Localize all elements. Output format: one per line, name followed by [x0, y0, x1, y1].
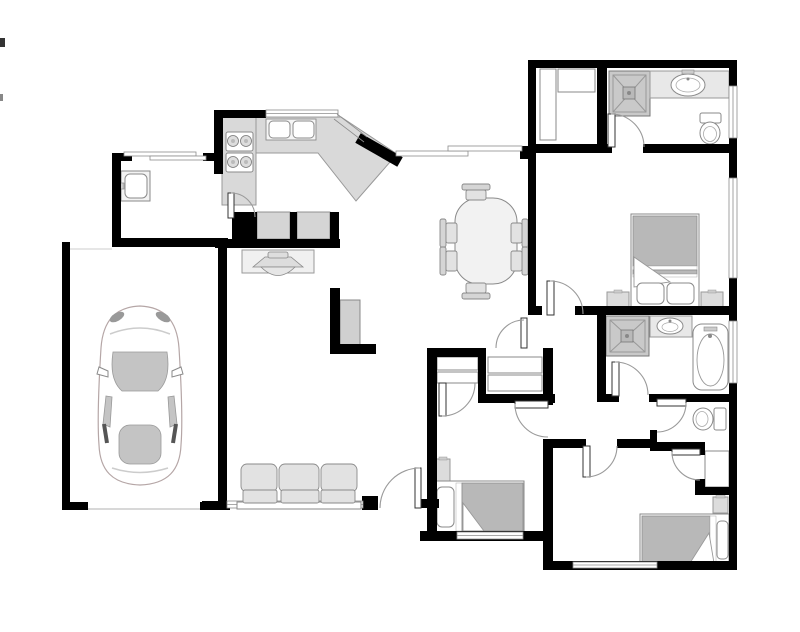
closet-shelf: [437, 357, 478, 370]
single-bed: [434, 481, 524, 533]
sofa-back-cushion: [279, 464, 319, 492]
windshield: [112, 352, 168, 391]
door-bath2: [612, 362, 648, 396]
room-family: [242, 212, 360, 346]
sofa: [237, 464, 361, 509]
utility-sink-basin: [125, 174, 147, 198]
shower-stall: [609, 71, 650, 116]
rear-window: [119, 425, 161, 464]
shower-stall: [606, 316, 649, 356]
car: [97, 306, 183, 485]
window-master-bath: [729, 86, 737, 138]
window-bedroom2: [457, 532, 523, 539]
dining-table: [455, 198, 517, 284]
room-master-bath: [540, 69, 729, 144]
room-kitchen: [222, 117, 397, 205]
sliding-patio-door: [396, 146, 522, 156]
single-bed: [640, 514, 729, 565]
bookshelf: [340, 300, 360, 346]
vanity-sink: [650, 316, 692, 337]
door-bedroom2: [515, 401, 548, 437]
door-bedroom3-closet: [672, 449, 700, 480]
room-hallway: [488, 357, 542, 391]
window-bath2: [729, 321, 737, 383]
tv-screen-arc: [261, 267, 295, 276]
window-master-bedroom: [729, 178, 737, 278]
built-in-cabinet: [297, 212, 330, 239]
dining-chair: [511, 247, 528, 275]
pillow: [637, 283, 664, 304]
closet-shelf: [540, 69, 556, 140]
pillow: [667, 283, 694, 304]
door-hall-closet: [496, 318, 527, 348]
kitchen-double-sink: [266, 119, 316, 140]
boundary-tick: [0, 38, 5, 47]
toilet: [693, 408, 726, 430]
sofa-back-cushion: [241, 464, 277, 492]
dining-chair: [511, 219, 528, 247]
door-front-entry: [380, 468, 421, 508]
sofa-seat-cushion: [321, 490, 355, 503]
tv-console: [242, 250, 314, 276]
pillow: [437, 487, 454, 527]
closet-shelf: [558, 69, 595, 92]
nightstand: [436, 459, 450, 483]
room-bath2: [606, 316, 728, 390]
sofa-seat-cushion: [243, 490, 277, 503]
window-kitchen-sink: [266, 110, 338, 117]
closet-interior: [705, 451, 729, 487]
room-bedroom3: [640, 451, 729, 565]
door-bedroom3: [583, 446, 617, 477]
nightstand: [713, 497, 728, 513]
dining-chair: [462, 283, 490, 299]
built-in-cabinet: [257, 212, 290, 239]
pillow: [717, 521, 728, 559]
sofa-seat-cushion: [281, 490, 319, 503]
window-bedroom3: [573, 562, 657, 568]
sofa-back-cushion: [321, 464, 357, 492]
toilet: [700, 113, 721, 144]
window-laundry: [124, 152, 206, 160]
double-bed: [631, 214, 699, 307]
door-master-bath: [608, 114, 644, 147]
room-laundry: [117, 171, 150, 201]
bathtub: [693, 324, 728, 390]
door-half-bath: [657, 399, 686, 432]
linen-shelf: [488, 357, 542, 373]
room-half-bath: [693, 408, 726, 430]
dining-chair: [462, 184, 490, 200]
vanity-sink: [650, 70, 729, 98]
dining-chair: [440, 247, 457, 275]
closet-shelf: [437, 372, 478, 383]
room-dining: [440, 184, 528, 299]
dining-chair: [440, 219, 457, 247]
floor-plan-drawing: [0, 0, 800, 632]
room-garage: [70, 249, 200, 509]
floor-plan-canvas: [0, 0, 800, 632]
door-bedroom2-closet: [439, 383, 475, 416]
blanket: [633, 216, 697, 266]
room-master-bedroom: [607, 214, 723, 309]
boundary-tick: [0, 94, 3, 101]
linen-shelf: [488, 375, 542, 391]
